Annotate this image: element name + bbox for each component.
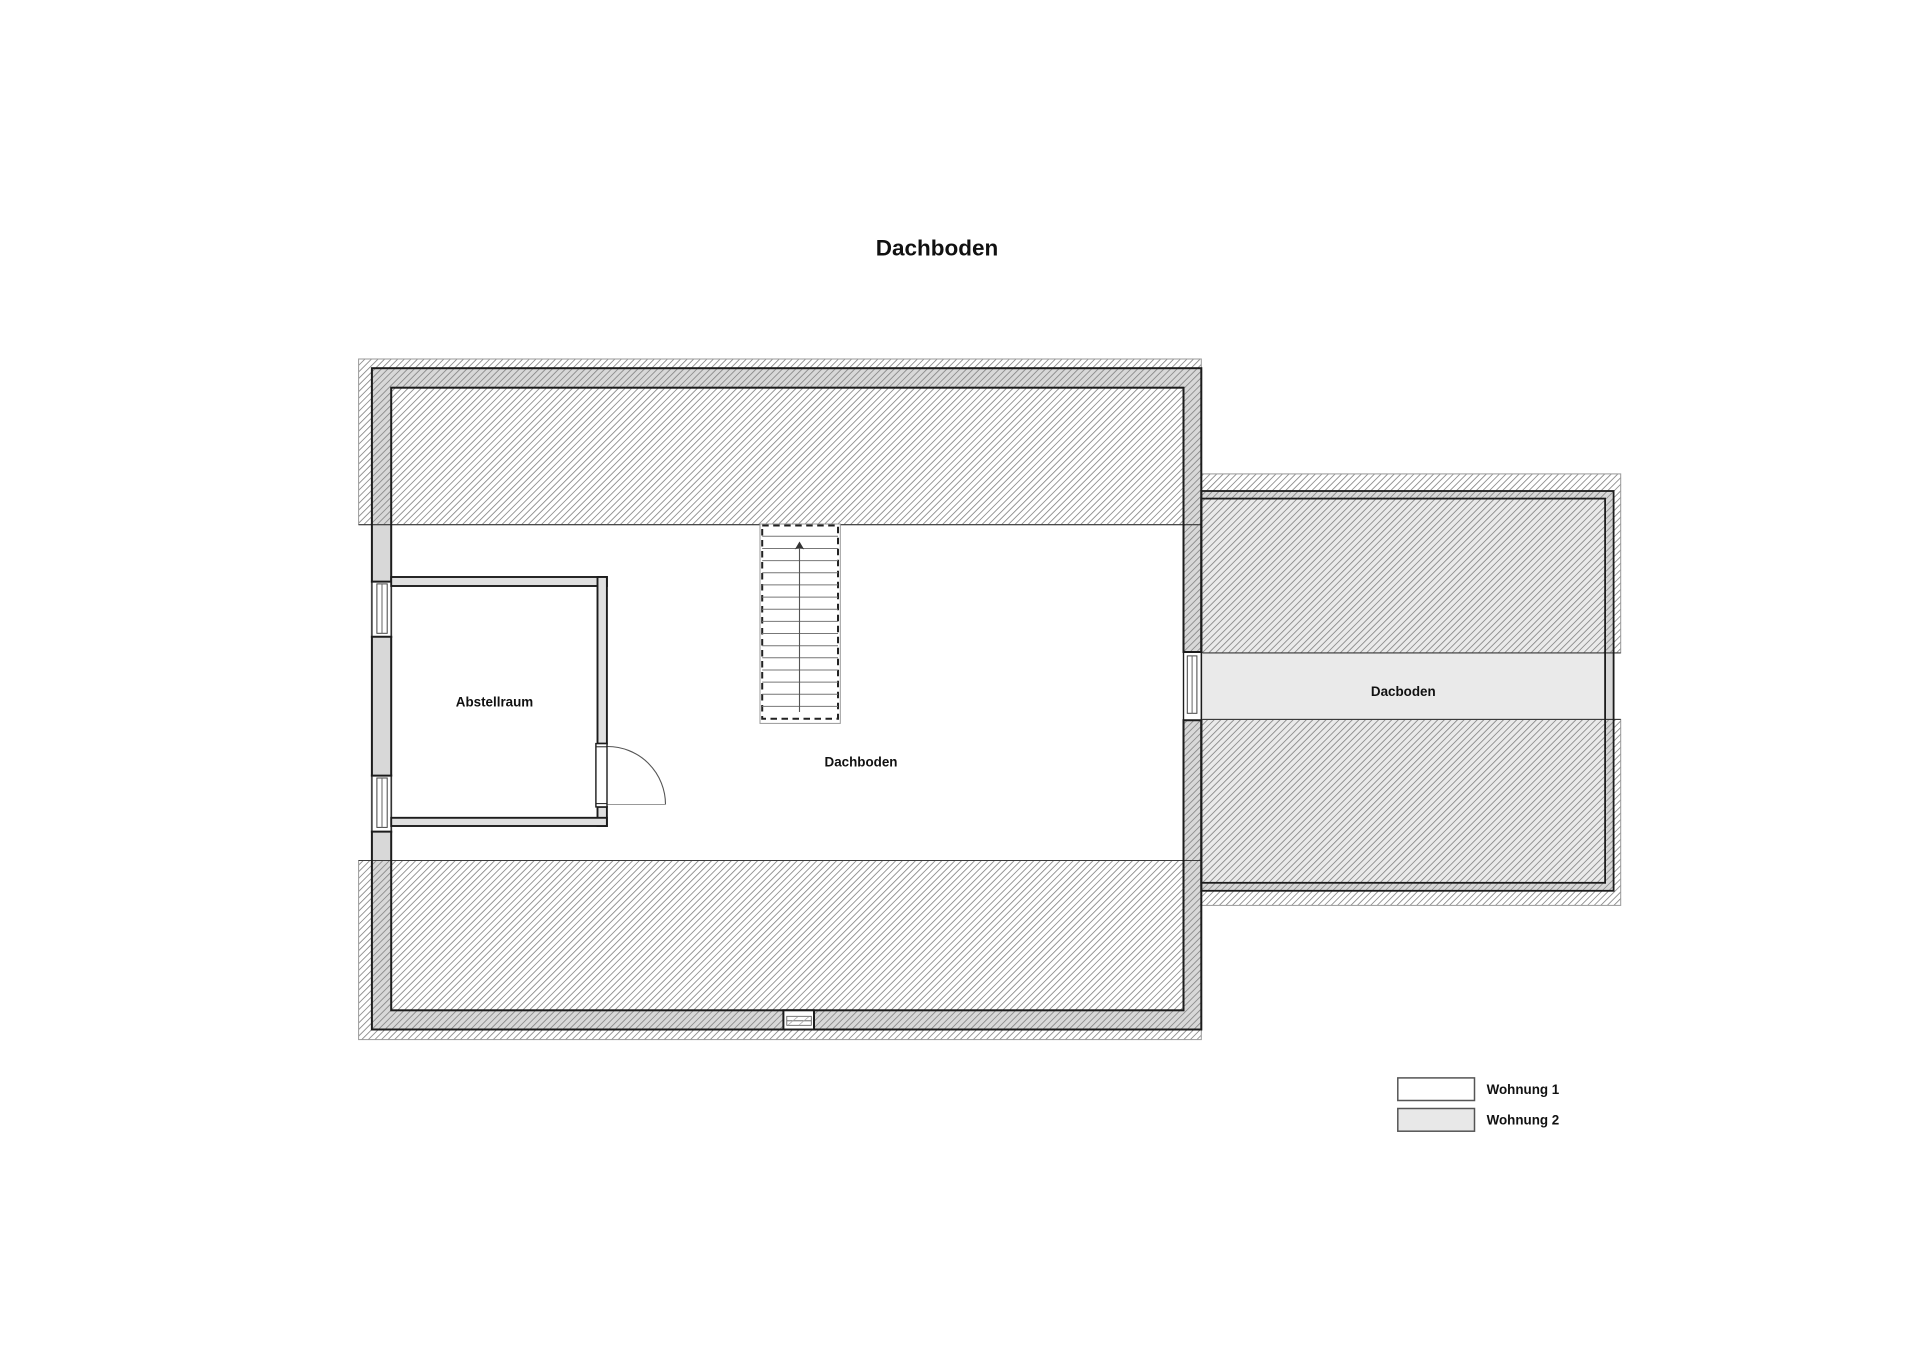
svg-text:Wohnung 1: Wohnung 1: [1487, 1082, 1560, 1097]
svg-text:Abstellraum: Abstellraum: [456, 695, 533, 710]
svg-text:Dachboden: Dachboden: [876, 235, 999, 260]
svg-text:Dacboden: Dacboden: [1371, 684, 1436, 699]
svg-text:Wohnung 2: Wohnung 2: [1487, 1113, 1560, 1128]
svg-text:Dachboden: Dachboden: [825, 755, 898, 770]
